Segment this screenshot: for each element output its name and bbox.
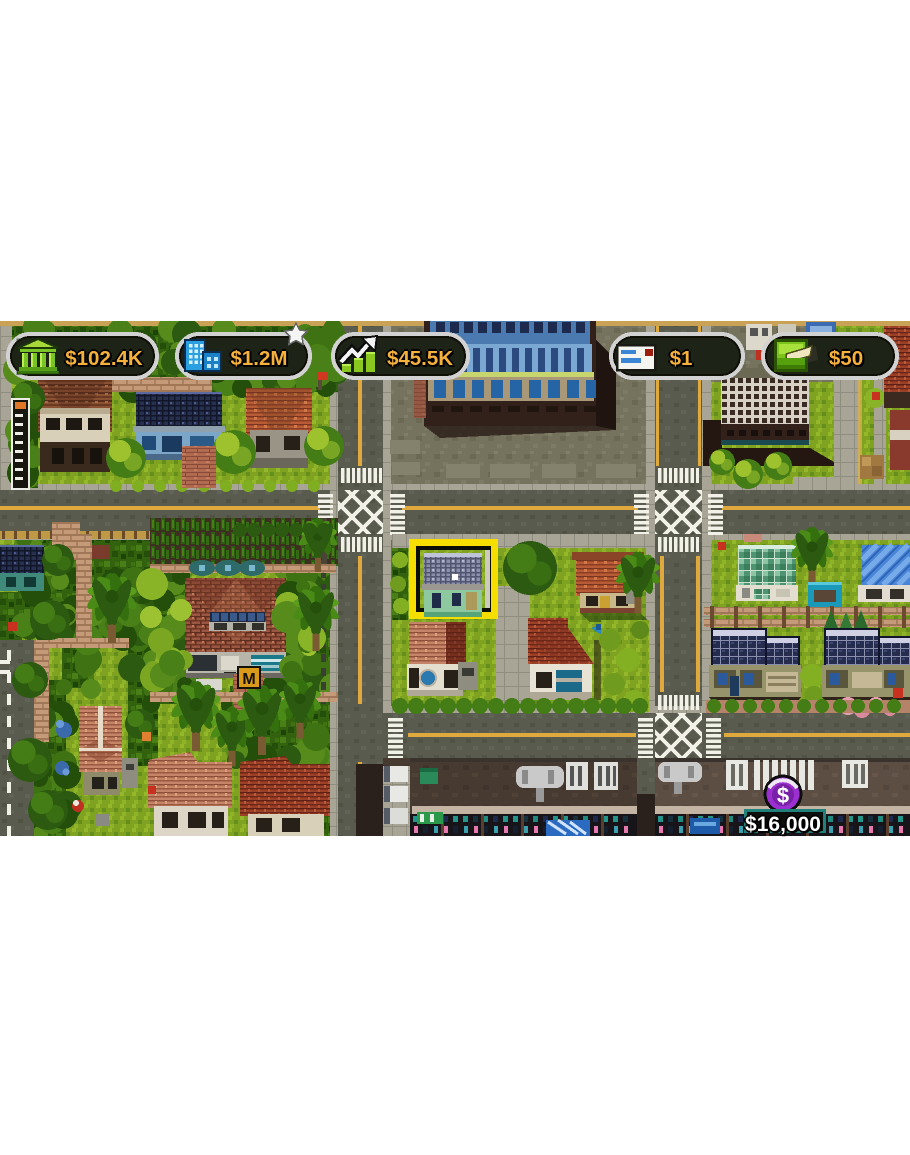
svg-text:$1: $1 (670, 347, 693, 370)
svg-text:M: M (242, 671, 255, 688)
svg-text:$45.5K: $45.5K (387, 347, 453, 370)
svg-text:$1.2M: $1.2M (231, 347, 288, 370)
svg-text:$50: $50 (829, 347, 863, 370)
svg-text:$16,000: $16,000 (745, 813, 821, 836)
svg-text:$: $ (777, 783, 789, 808)
svg-text:$102.4K: $102.4K (65, 347, 143, 370)
